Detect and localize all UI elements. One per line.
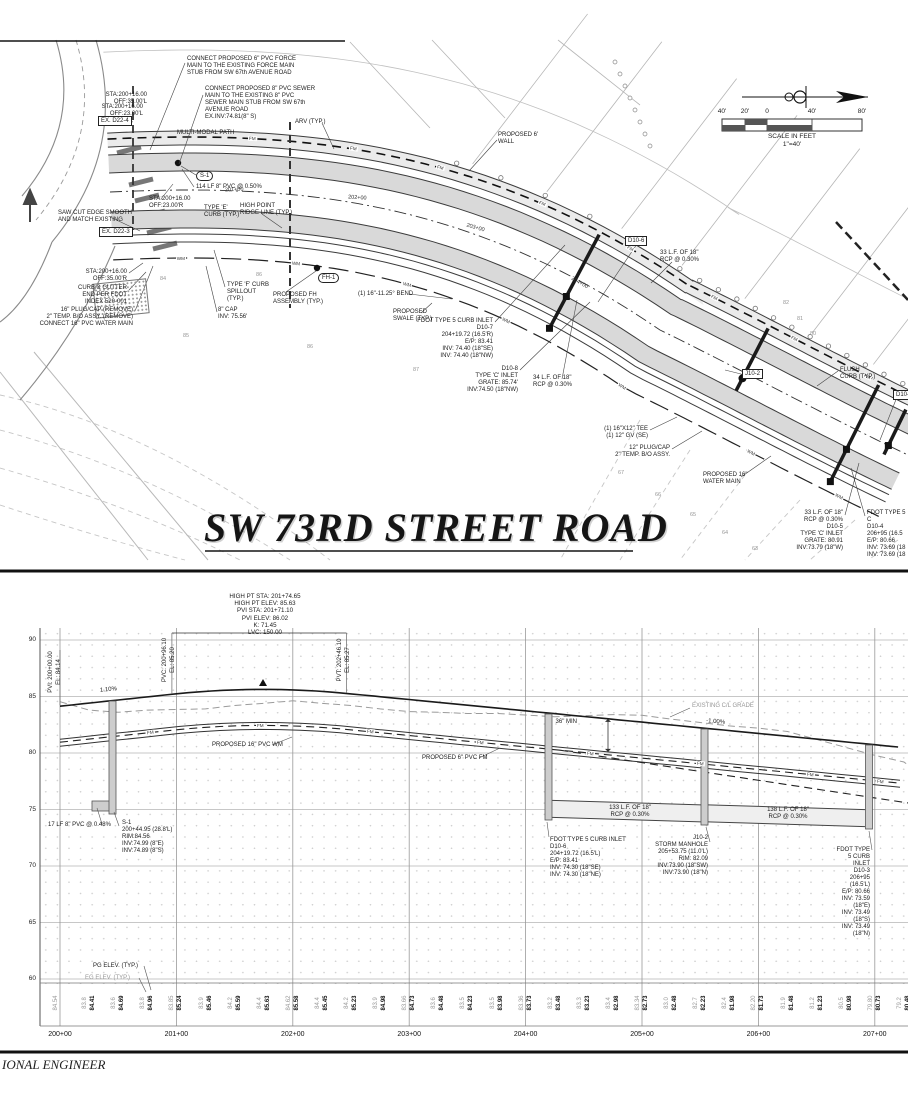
leader-line	[114, 812, 119, 826]
curve-data-line: HIGH PT ELEV: 85.63	[234, 600, 295, 607]
vertical-curve-label: PVI: 200+00.00	[48, 651, 54, 693]
eg-elevation-value: 83.0	[664, 997, 670, 1009]
curve-data-line: HIGH PT STA: 201+74.65	[229, 593, 300, 600]
plan-callout-saw-cut: SAW CUT EDGE SMOOTH AND MATCH EXISTING	[58, 210, 132, 224]
vertical-curve-label: PVT: 202+46.10	[337, 639, 343, 682]
fm-line-label: FM	[806, 771, 815, 777]
fm-line-label: FM	[248, 136, 257, 141]
station-axis-label: 205+00	[630, 1031, 654, 1038]
leader-line	[670, 708, 690, 717]
sheet: { "title": "SW 73RD STREET ROAD", "foote…	[0, 0, 908, 1100]
plan-callout-connect-sewer-main: CONNECT PROPOSED 8" PVC SEWER MAIN TO TH…	[205, 86, 315, 121]
plan-callout-type-f-curb: TYPE 'F' CURB SPILLOUT (TYP.)	[227, 282, 269, 303]
contour-elevation-label: 82	[783, 300, 789, 307]
vertical-curve-label: EL: 85.20	[170, 647, 176, 673]
plan-callout-plug-cap-12: 12" PLUG/CAP 2" TEMP. B/O ASSY.	[615, 445, 670, 459]
pg-elevation-value: 83.98	[498, 995, 504, 1010]
plan-callout-multi-modal-path: MULTI-MODAL PATH	[177, 130, 234, 137]
j10-2-structure	[701, 729, 708, 825]
vertical-curve-label: EL: 85.27	[345, 647, 351, 673]
eg-elevation-value: 84.2	[344, 997, 350, 1009]
eg-elevation-value: 83.4	[606, 997, 612, 1009]
pg-elevation-value: 81.48	[789, 995, 795, 1010]
profile-callout-existing-cl-grade: EXISTING C/L GRADE	[692, 703, 754, 710]
d10-3-structure	[866, 745, 873, 829]
profile-callout-d10-6-profile: FDOT TYPE 5 CURB INLET D10-6 204+19.72 (…	[550, 837, 626, 879]
scale-in-feet-label: SCALE IN FEET	[768, 133, 816, 140]
pg-elevation-value: 80.73	[876, 995, 882, 1010]
high-point-marker	[259, 679, 267, 686]
profile-callout-17lf-pvc: 17 LF 8" PVC @ 0.48%	[48, 822, 111, 829]
elevation-axis-label: 65	[18, 919, 36, 926]
station-axis-label: 203+00	[397, 1031, 421, 1038]
eg-elevation-value: 83.8	[82, 997, 88, 1009]
leader-line	[547, 822, 549, 837]
elevation-axis-label: 80	[18, 749, 36, 756]
wm-line-label: WM	[291, 260, 302, 266]
plan-callout-high-point-ridge: HIGH POINT RIDGE LINE (TYP.)	[240, 203, 292, 217]
eg-elevation-value: 83.8	[140, 997, 146, 1009]
elevation-axis-label: 75	[18, 806, 36, 813]
profile-callout-133lf-rcp: 133 L.F. OF 18" RCP @ 0.30%	[609, 805, 651, 819]
eg-elevation-value: 83.85	[169, 995, 175, 1010]
proposed-grade-line	[60, 689, 898, 747]
pg-elevation-value: 85.46	[207, 995, 213, 1010]
pg-elevation-value: 84.69	[119, 995, 125, 1010]
eg-elevation-value: 83.5	[460, 997, 466, 1009]
plan-callout-j10-2-box: J10-2	[742, 369, 763, 379]
eg-elevation-value: 83.2	[548, 997, 554, 1009]
plan-callout-water-main-16: PROPOSED 16" WATER MAIN	[703, 472, 747, 486]
pg-elevation-value: 84.96	[148, 995, 154, 1010]
eg-elevation-value: 83.66	[402, 995, 408, 1010]
fm-line-label: FM	[256, 723, 265, 728]
curve-data-line: K: 71.45	[253, 622, 276, 629]
plan-callout-sta-35r: STA:200+16.00 OFF:35.00'R	[86, 269, 127, 283]
pg-elevation-value: 85.63	[265, 995, 271, 1010]
vertical-curve-label: EL: 84.14	[56, 659, 62, 685]
station-axis-label: 202+00	[281, 1031, 305, 1038]
plan-callout-bend-16: (1) 16"-11.25° BEND	[358, 291, 413, 298]
pg-elevation-value: 81.98	[730, 995, 736, 1010]
pg-elevation-value: 85.59	[236, 995, 242, 1010]
contour-elevation-label: 84	[160, 276, 166, 283]
plan-callout-33lf-rcp-a: 33 L.F. OF 18" RCP @ 0.30%	[660, 250, 699, 264]
plan-callout-sta-23r: STA:200+16.00 OFF:23.00'R	[149, 196, 190, 210]
contour-elevation-label: 67	[618, 470, 624, 477]
eg-elevation-value: 82.20	[751, 995, 757, 1010]
fm-line-label: FM	[586, 750, 595, 756]
eg-elevation-value: 83.9	[373, 997, 379, 1009]
pg-elevation-value: 83.23	[585, 995, 591, 1010]
road-station-label: 201+00	[225, 187, 244, 195]
contour-elevation-label: 85	[183, 333, 189, 340]
eg-elevation-value: 83.6	[431, 997, 437, 1009]
plan-callout-flush-curb: FLUSH CURB (TYP.)	[840, 367, 875, 381]
pg-elevation-value: 81.73	[759, 995, 765, 1010]
plan-callout-plug-cap-16: 16" PLUG/CAP (REMOVE) 2" TEMP. B/O ASSY.…	[40, 307, 133, 328]
leader-line	[139, 978, 146, 992]
plan-callout-s1-bubble: S-1	[196, 171, 213, 181]
eg-elevation-value: 82.4	[722, 997, 728, 1009]
sewer-stub-pipe	[92, 801, 110, 811]
plan-callout-arv: ARV (TYP.)	[295, 119, 325, 126]
eg-elevation-value: 80.5	[839, 997, 845, 1009]
plan-callout-d10-8: D10-8 TYPE 'C' INLET GRATE: 85.74' INV:7…	[467, 366, 518, 394]
engineer-footer-text: IONAL ENGINEER	[2, 1057, 105, 1073]
sheet-title: SW 73RD STREET ROAD	[204, 504, 668, 551]
eg-elevation-value: 83.3	[577, 997, 583, 1009]
eg-elevation-value: 81.9	[781, 997, 787, 1009]
pg-elevation-value: 84.98	[381, 995, 387, 1010]
pg-elevation-value: 81.23	[818, 995, 824, 1010]
plan-callout-connect-force-main: CONNECT PROPOSED 6" PVC FORCE MAIN TO TH…	[187, 56, 296, 77]
plan-callout-d10-3-box: D10-3	[893, 390, 908, 400]
contour-elevation-label: 64	[722, 530, 728, 537]
station-axis-label: 200+00	[48, 1031, 72, 1038]
station-axis-label: 207+00	[863, 1031, 887, 1038]
station-axis-label: 204+00	[514, 1031, 538, 1038]
pg-elevation-value: 82.98	[614, 995, 620, 1010]
eg-elevation-value: 84.62	[286, 995, 292, 1010]
plan-callout-d10-4: FDOT TYPE 5 C D10-4 206+95 (16.5 E/P: 80…	[867, 510, 908, 559]
profile-callout-pg-elev-label: PG ELEV. (TYP.)	[93, 963, 138, 970]
profile-callout-d10-3-profile: FDOT TYPE 5 CURB INLET D10-3 206+95 (16.…	[832, 847, 870, 938]
contour-elevation-label: 66	[655, 492, 661, 499]
scale-tick-label: 20'	[741, 108, 749, 115]
pg-elevation-value: 85.58	[294, 995, 300, 1010]
plan-callout-34lf-rcp: 34 L.F. OF 18" RCP @ 0.30%	[533, 375, 572, 389]
pg-elevation-value: 84.73	[410, 995, 416, 1010]
elevation-axis-label: 85	[18, 693, 36, 700]
elevation-axis-label: 90	[18, 636, 36, 643]
eg-elevation-value: 84.4	[257, 997, 263, 1009]
wm-line-label: WM	[176, 256, 186, 261]
pg-elevation-value: 82.48	[672, 995, 678, 1010]
plan-callout-wall-6ft: PROPOSED 6' WALL	[498, 132, 538, 146]
profile-callout-fm-6-label: PROPOSED 6" PVC FM	[422, 755, 487, 762]
eg-elevation-value: 84.54	[53, 995, 59, 1010]
force-main-profile	[560, 750, 908, 803]
pg-elevation-value: 85.23	[352, 995, 358, 1010]
pg-elevation-value: 83.73	[527, 995, 533, 1010]
curve-data-line: LVC: 150.00	[248, 629, 282, 636]
plan-callout-d10-5: 33 L.F. OF 18" RCP @ 0.30% D10-5 TYPE 'C…	[796, 510, 843, 552]
eg-elevation-value: 79.80	[868, 995, 874, 1010]
pg-elevation-value: 83.48	[556, 995, 562, 1010]
d10-6-structure	[545, 714, 552, 820]
pg-elevation-value: 82.23	[701, 995, 707, 1010]
scale-tick-label: 40'	[808, 108, 816, 115]
profile-callout-j10-2-profile: J10-2 STORM MANHOLE 205+53.75 (11.0'L) R…	[655, 835, 708, 877]
contour-elevation-label: 86	[256, 272, 262, 279]
profile-callout-wm-16-label: PROPOSED 16" PVC WM	[212, 742, 283, 749]
profile-callout-s1-profile: S-1 200+44.95 (28.8'L) RIM:84.56 INV:74.…	[122, 820, 172, 855]
leader-line	[144, 966, 151, 990]
pg-elevation-value: 84.41	[90, 995, 96, 1010]
contour-elevation-label: 86	[307, 344, 313, 351]
plan-callout-curb-gutter-end: CURB & GUTTER END PER FDOT INDEX 520-001	[78, 285, 127, 306]
fm-line-label: FM	[366, 729, 375, 735]
pg-elevation-value: 84.23	[468, 995, 474, 1010]
plan-callout-d10-6-box: D10-6	[625, 236, 647, 246]
profile-callout-36in-min: 36" MIN	[556, 719, 577, 726]
eg-elevation-value: 83.5	[490, 997, 496, 1009]
elevation-axis-label: 60	[18, 975, 36, 982]
station-axis-label: 201+00	[165, 1031, 189, 1038]
eg-elevation-value: 83.6	[111, 997, 117, 1009]
fm-line-label: FM	[146, 730, 155, 736]
profile-callout-eg-elev-label: EG ELEV. (TYP.)	[85, 975, 130, 982]
curve-data-line: PVI STA: 201+71.10	[237, 607, 293, 614]
contour-elevation-label: 80	[810, 331, 816, 338]
station-axis-label: 206+00	[747, 1031, 771, 1038]
contour-elevation-label: 81	[797, 316, 803, 323]
pg-elevation-value: 85.24	[177, 995, 183, 1010]
eg-elevation-value: 83.9	[199, 997, 205, 1009]
pg-elevation-value: 82.73	[643, 995, 649, 1010]
plan-callout-ex-d22-4: EX. D22-4	[98, 116, 132, 126]
plan-callout-type-e-curb: TYPE 'E' CURB (TYP.)	[204, 205, 239, 219]
elevation-axis-label: 70	[18, 862, 36, 869]
plan-callout-d10-7: FDOT TYPE 5 CURB INLET D10-7 204+19.72 (…	[417, 318, 493, 360]
profile-callout-138lf-rcp: 138 L.F. OF 18" RCP @ 0.30%	[767, 807, 809, 821]
pg-elevation-value: 85.45	[323, 995, 329, 1010]
contour-elevation-label: 63	[752, 546, 758, 553]
eg-elevation-value: 83.34	[635, 995, 641, 1010]
eg-elevation-value: 84.4	[315, 997, 321, 1009]
curve-data-line: PVI ELEV: 86.02	[242, 615, 288, 622]
eg-elevation-value: 81.2	[810, 997, 816, 1009]
fm-line-label: FM	[876, 778, 885, 784]
water-main-profile	[60, 722, 900, 780]
contour-elevation-label: 65	[690, 512, 696, 519]
scale-tick-label: 0	[765, 108, 769, 115]
eg-elevation-value: 79.2	[897, 997, 903, 1009]
contour-elevation-label: 87	[413, 367, 419, 374]
s1-structure	[109, 701, 116, 814]
scale-tick-label: 40'	[718, 108, 726, 115]
plan-callout-tee-16x12: (1) 16"X12" TEE (1) 12" GV (SE)	[604, 426, 648, 440]
plan-callout-fh1-bubble: FH-1	[318, 273, 339, 283]
plan-callout-fh-assembly: PROPOSED FH ASSEMBLY (TYP.)	[273, 292, 323, 306]
eg-elevation-value: 83.36	[519, 995, 525, 1010]
eg-elevation-value: 84.2	[228, 997, 234, 1009]
vertical-curve-label: PVC: 200+96.10	[162, 638, 168, 682]
scale-tick-label: 80'	[858, 108, 866, 115]
eg-elevation-value: 82.7	[693, 997, 699, 1009]
fm-line-label: FM	[476, 739, 485, 745]
road-station-label: 202+00	[348, 194, 367, 202]
plan-callout-cap-8: 8" CAP INV: 75.56'	[218, 307, 247, 321]
scale-ratio-label: 1"=40'	[783, 141, 801, 148]
pg-elevation-value: 80.98	[847, 995, 853, 1010]
pg-elevation-value: 84.48	[439, 995, 445, 1010]
plan-callout-ex-d22-3: EX. D22-3	[99, 227, 133, 237]
